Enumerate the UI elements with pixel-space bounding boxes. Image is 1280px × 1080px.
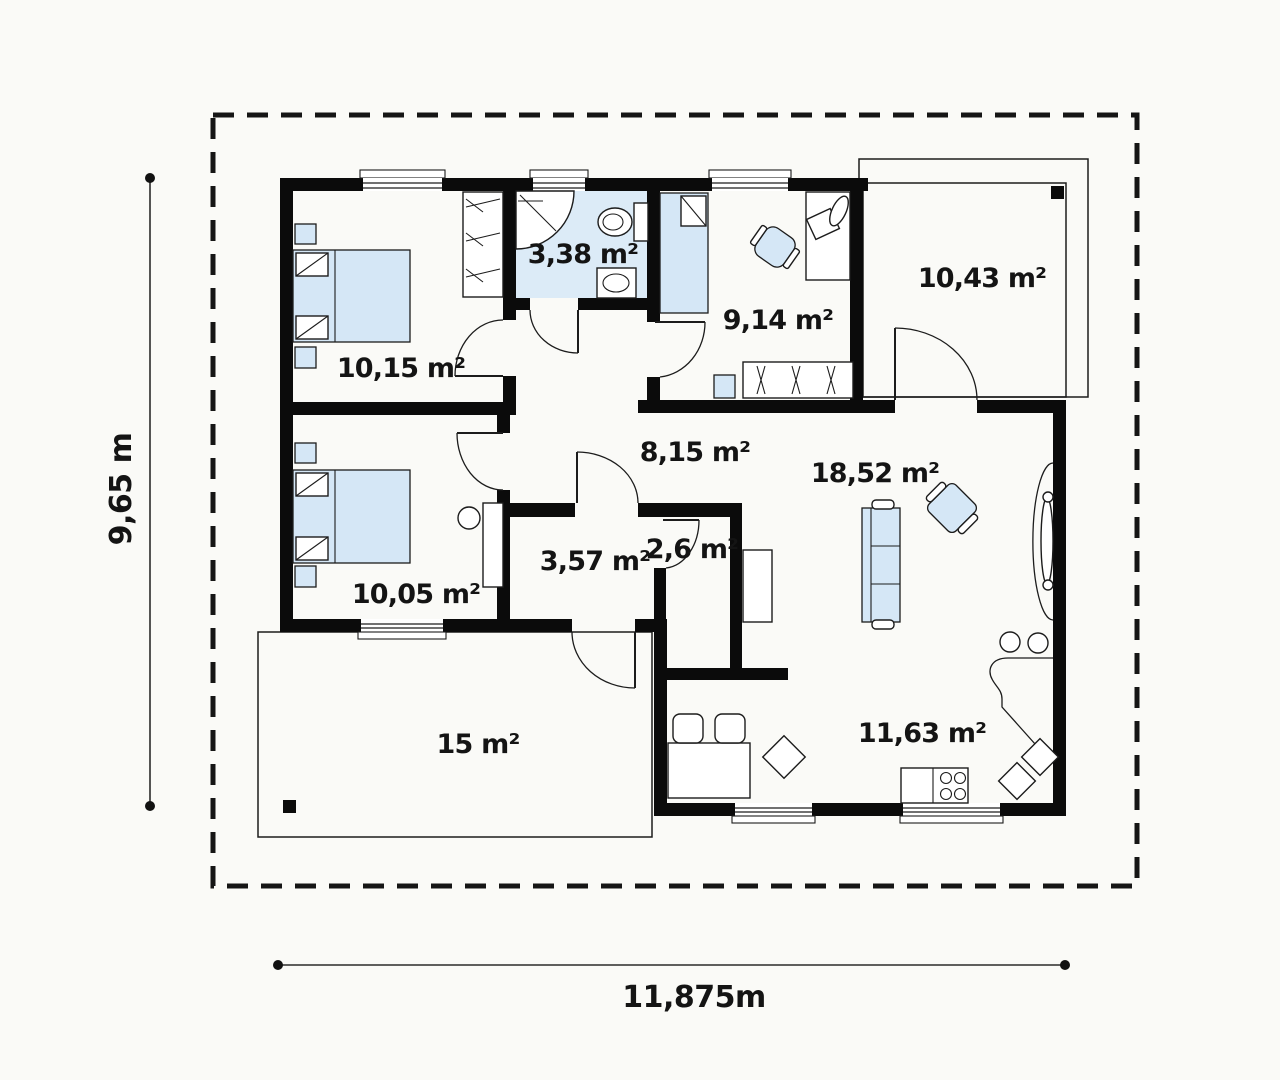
window-kitchen-2: [900, 803, 1003, 823]
wall-bedroom1-right-stub: [503, 376, 516, 404]
wall-closet-left: [654, 568, 666, 634]
wall-kitchen-top: [654, 668, 788, 680]
dining-chair: [763, 736, 805, 778]
wall-folding-table: [1033, 463, 1053, 620]
dimension-height: 9,65 m: [104, 173, 155, 811]
bedroom2-furniture: [660, 192, 853, 398]
room-label-terrace: 15 m²: [437, 729, 520, 760]
wardrobe: [463, 192, 503, 297]
wall-closet-left-stub: [654, 503, 666, 517]
wardrobe: [743, 362, 853, 398]
wall-bedroom3-right-stub: [497, 415, 510, 433]
wall-closet-right: [730, 503, 742, 680]
dimension-endpoint: [145, 801, 155, 811]
wall-bathroom-bottom: [578, 298, 648, 310]
dimension-endpoint: [1060, 960, 1070, 970]
bar-stool: [1028, 633, 1048, 653]
room-label-bedroom-3: 10,05 m²: [352, 579, 480, 610]
bedroom3-furniture: [293, 443, 503, 587]
room-label-closet: 2,6 m²: [646, 534, 738, 565]
sofa: [862, 508, 900, 622]
wall-bedrooms-divider: [293, 402, 516, 415]
window-bathroom: [530, 170, 588, 191]
toilet-tank: [634, 203, 648, 241]
wall-bathroom-bottom: [510, 298, 530, 310]
terrace-column: [283, 800, 296, 813]
wall-left: [280, 178, 293, 632]
wall-bathroom-right-stub: [647, 377, 660, 402]
floor-plan-canvas: 9,65 m 11,875m: [0, 0, 1280, 1080]
side-table: [458, 507, 480, 529]
wall-bottom-right: [654, 803, 1066, 816]
room-label-bathroom: 3,38 m²: [528, 239, 638, 270]
dimension-endpoint: [273, 960, 283, 970]
wall-mid-horizontal: [977, 400, 1066, 413]
kitchen-chair: [999, 763, 1036, 800]
dimension-endpoint: [145, 173, 155, 183]
room-label-kitchen: 11,63 m²: [858, 718, 986, 749]
dining-chair: [673, 714, 703, 743]
dining-table: [668, 743, 750, 798]
wall-hall-top: [508, 503, 575, 517]
door-terrace: [572, 632, 635, 688]
sofa-armrest: [872, 620, 894, 629]
door-bathroom: [530, 310, 578, 353]
room-label-hall: 3,57 m²: [540, 546, 650, 577]
room-label-covered-terrace: 10,43 m²: [918, 263, 1046, 294]
door-entrance: [895, 328, 977, 400]
nightstand: [295, 347, 316, 368]
door-hall: [577, 452, 638, 503]
window-bedroom1: [360, 170, 445, 191]
room-label-bedroom-1: 10,15 m²: [337, 353, 465, 384]
door-bedroom3: [457, 433, 503, 490]
nightstand: [295, 566, 316, 587]
floor-plan-drawing: 9,65 m 11,875m: [0, 0, 1280, 1080]
height-dimension-label: 9,65 m: [104, 433, 139, 546]
room-label-bedroom-2: 9,14 m²: [723, 305, 833, 336]
covered-terrace-column: [1051, 186, 1064, 199]
kitchen-counter: [990, 658, 1053, 754]
office-chair: [746, 220, 803, 274]
kitchen-chair: [1022, 739, 1059, 776]
window-bedroom3: [358, 619, 446, 639]
window-kitchen-1: [732, 803, 815, 823]
bar-stool: [1000, 632, 1020, 652]
dresser: [483, 503, 503, 587]
wall-hall-top-stub: [638, 503, 655, 517]
tv-cabinet: [743, 550, 772, 622]
wall-bathroom-right: [647, 178, 660, 322]
wall-kitchen-left: [654, 632, 667, 816]
room-label-living-room: 18,52 m²: [811, 458, 939, 489]
nightstand: [295, 224, 316, 244]
width-dimension-label: 11,875m: [622, 980, 766, 1015]
bedroom1-furniture: [293, 192, 503, 368]
dimension-width: 11,875m: [273, 960, 1070, 1015]
dining-chair: [715, 714, 745, 743]
door-bedroom2: [655, 322, 705, 377]
room-label-hallway: 8,15 m²: [640, 437, 750, 468]
window-bedroom2: [709, 170, 791, 191]
sofa-armrest: [872, 500, 894, 509]
nightstand: [295, 443, 316, 463]
cabinet: [714, 375, 735, 398]
